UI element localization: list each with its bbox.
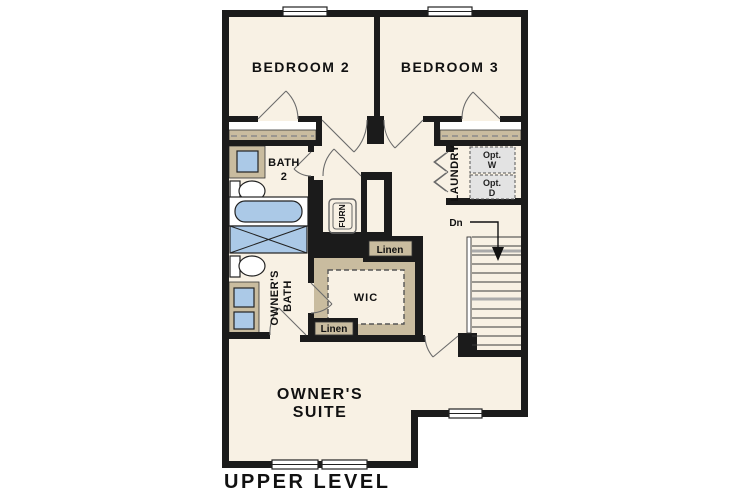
bedroom3-label: BEDROOM 3: [401, 59, 499, 75]
owners-suite-window-3: [449, 409, 482, 418]
owners-bath-toilet-bowl: [239, 256, 265, 276]
floor-plan-page: BEDROOM 2 BEDROOM 3 BATH 2 OWNER'S BATH …: [0, 0, 750, 500]
opt-washer-label-line1: Opt.: [483, 150, 501, 160]
stairs-down-label: Dn: [449, 218, 462, 229]
owners-suite-window-1: [272, 460, 318, 469]
stair-railing: [467, 237, 471, 333]
bedroom2-closet-floor: [229, 121, 316, 130]
owners-suite-window-2: [322, 460, 367, 469]
bath2-bathtub: [235, 201, 302, 222]
owners-bath-sink-1: [234, 288, 254, 307]
bath2-sink: [237, 151, 258, 172]
bedroom3-window: [428, 7, 472, 16]
page-title: UPPER LEVEL: [224, 471, 390, 493]
bedroom3-closet-floor: [440, 121, 521, 130]
linen-bottom-label: Linen: [321, 324, 348, 335]
bath2-label-line1: BATH: [268, 157, 300, 169]
owners-bath-sink-2: [234, 312, 254, 329]
linen-top-label: Linen: [377, 245, 404, 256]
bedroom2-label: BEDROOM 2: [252, 59, 350, 75]
owners-suite-label-line1: OWNER'S: [277, 386, 363, 403]
owners-suite-label-line2: SUITE: [293, 404, 348, 421]
opt-washer-label-line2: W: [488, 160, 497, 170]
wic-label: WIC: [354, 292, 378, 304]
bedroom2-window: [283, 7, 327, 16]
opt-dryer-label-line1: Opt.: [483, 178, 501, 188]
opt-dryer-label-line2: D: [489, 188, 496, 198]
upper-level-floor-plan: BEDROOM 2 BEDROOM 3 BATH 2 OWNER'S BATH …: [0, 0, 750, 500]
furnace-label: FURN: [337, 204, 347, 228]
shower: [230, 226, 307, 253]
bath2-label-line2: 2: [281, 171, 288, 183]
laundry-label: LAUNDRY: [449, 144, 461, 201]
